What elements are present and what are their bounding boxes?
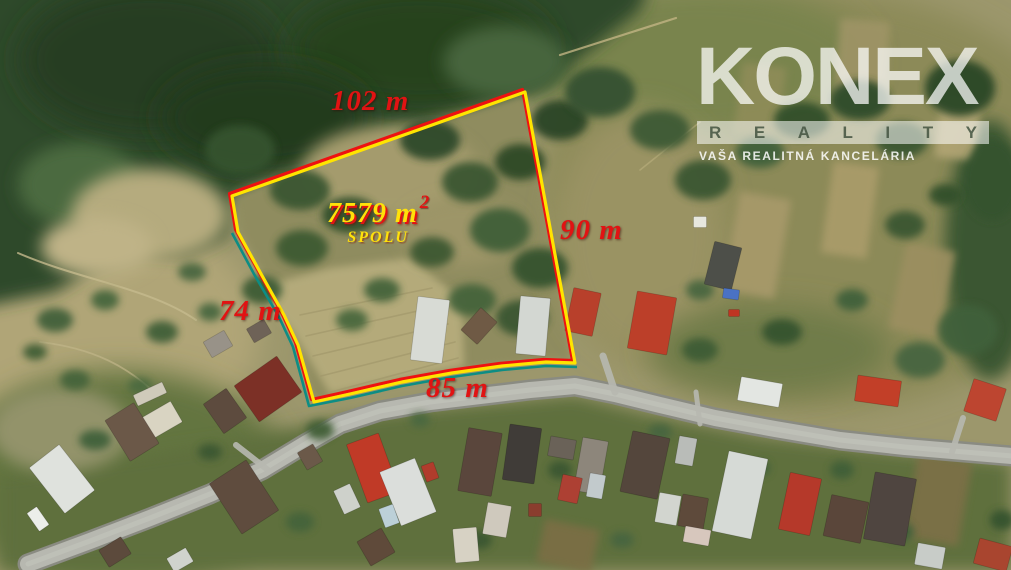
tree-canopy [336, 309, 368, 331]
house-roof [516, 296, 551, 356]
house-roof [655, 492, 682, 525]
terrain-region [443, 26, 567, 98]
measurement-label-top: 102 m [331, 87, 409, 116]
tree-canopy [60, 370, 90, 390]
satellite-map [0, 0, 1011, 570]
measurement-label-bottom: 85 m [426, 374, 489, 403]
house-roof [453, 527, 480, 563]
tree-canopy [146, 321, 178, 343]
tree-canopy [410, 413, 430, 427]
area-label: 7579 m2 SPOLU [327, 200, 429, 246]
tree-canopy [938, 305, 998, 355]
tree-canopy [830, 80, 890, 120]
house-roof [529, 504, 542, 517]
tree-canopy [442, 162, 498, 202]
tree-canopy [286, 512, 314, 532]
house-roof [677, 494, 708, 530]
house-roof [729, 310, 740, 317]
tree-canopy [470, 208, 530, 252]
tree-canopy [675, 160, 731, 200]
house-roof [854, 375, 901, 407]
tree-canopy [885, 211, 925, 239]
tree-canopy [876, 122, 928, 158]
tree-canopy [79, 430, 111, 450]
tree-canopy [364, 278, 400, 302]
tree-canopy [91, 290, 119, 310]
area-superscript: 2 [420, 193, 430, 212]
measurement-label-left: 74 m [219, 297, 282, 326]
measurement-label-right: 90 m [560, 216, 623, 245]
tree-canopy [895, 342, 945, 378]
tree-canopy [276, 230, 328, 266]
tree-canopy [929, 184, 961, 206]
tree-canopy [836, 289, 868, 311]
tree-canopy [178, 263, 206, 281]
tree-canopy [448, 284, 496, 316]
tree-canopy [565, 67, 635, 117]
tree-canopy [198, 444, 222, 460]
house-roof [694, 217, 707, 228]
tree-canopy [306, 420, 334, 440]
tree-canopy [37, 308, 73, 332]
tree-canopy [23, 344, 47, 360]
tree-canopy [682, 338, 718, 362]
aerial-photo: 102 m 90 m 74 m 85 m 7579 m2 SPOLU KONEX… [0, 0, 1011, 570]
tree-canopy [774, 102, 830, 138]
house-roof [547, 436, 576, 460]
tree-canopy [630, 110, 690, 150]
tree-canopy [925, 60, 995, 116]
house-roof [823, 495, 869, 544]
tree-canopy [762, 319, 802, 345]
tree-canopy [830, 461, 854, 479]
area-total-label: SPOLU [327, 230, 429, 246]
tree-canopy [610, 532, 634, 548]
area-value: 7579 m [327, 198, 418, 229]
tree-canopy [736, 136, 784, 168]
house-roof [914, 543, 945, 570]
house-roof [482, 502, 511, 538]
tree-canopy [205, 125, 275, 175]
house-roof [722, 288, 739, 300]
